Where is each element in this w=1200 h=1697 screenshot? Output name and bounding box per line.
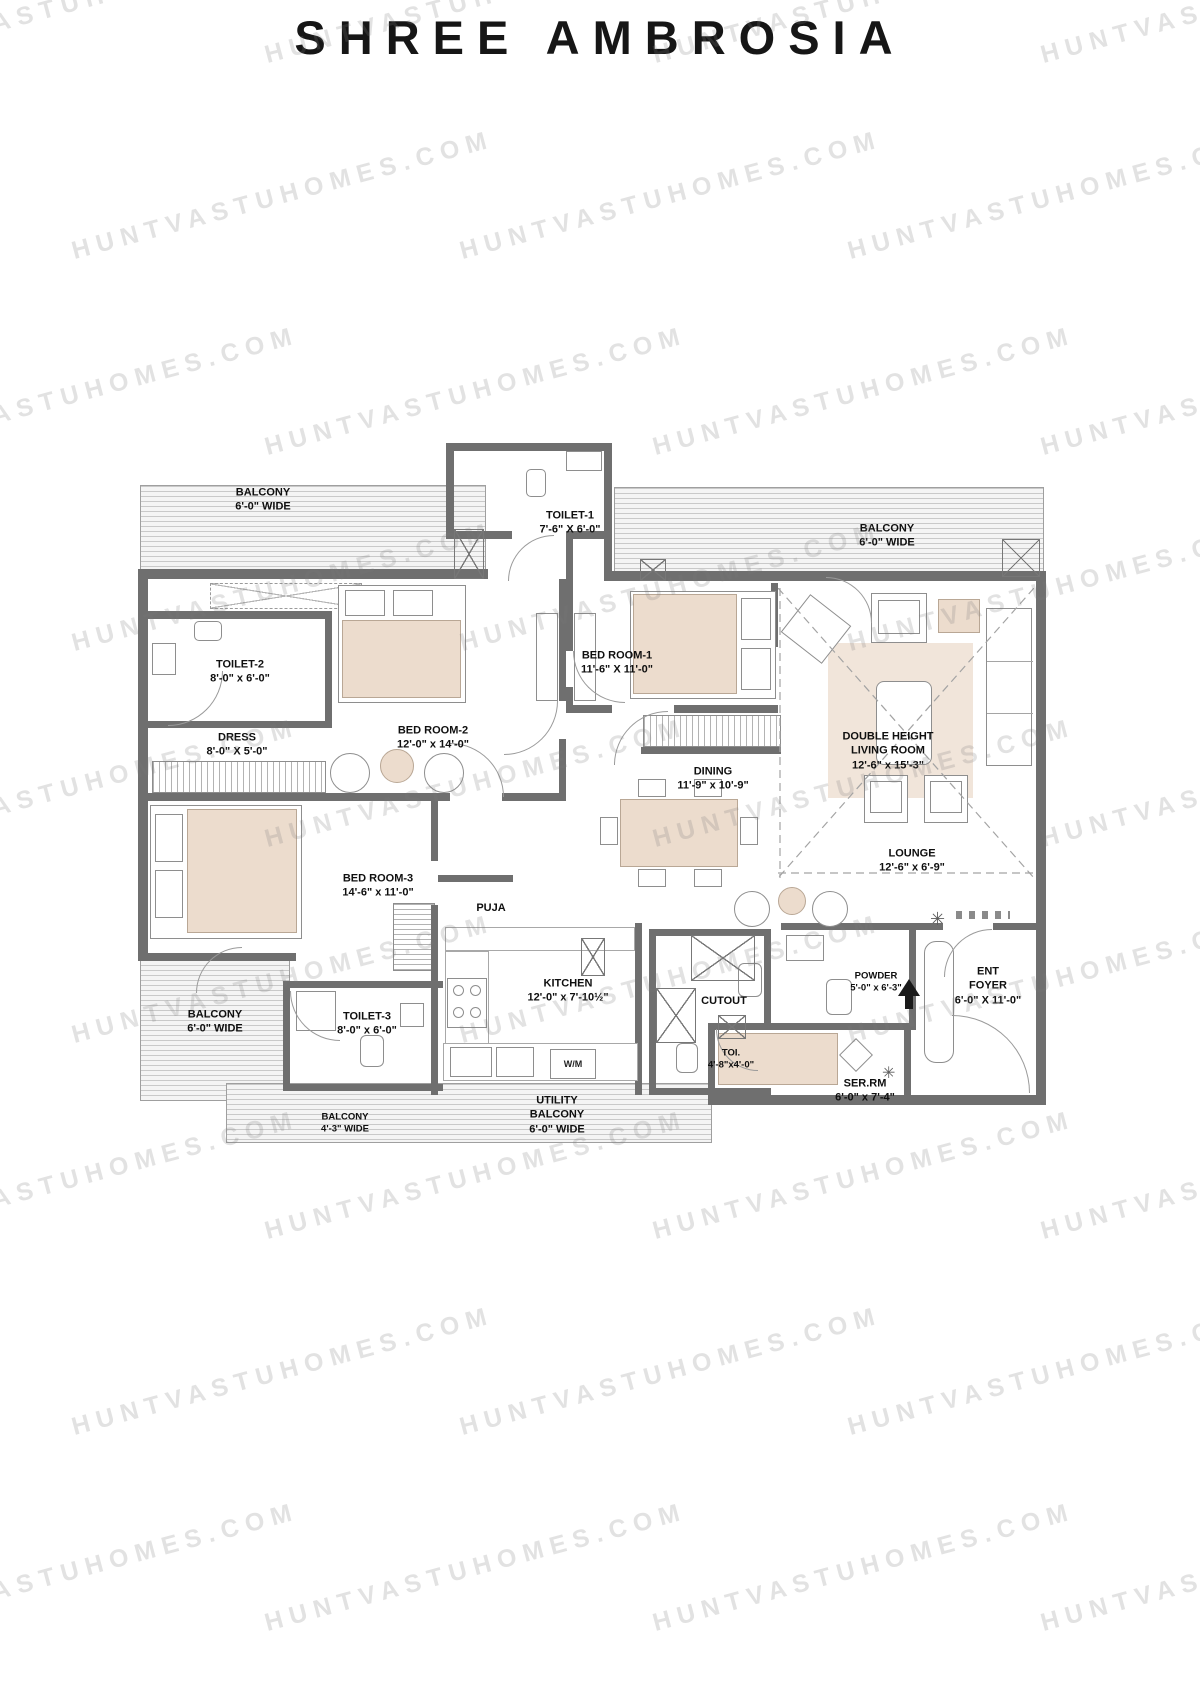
door-arc bbox=[952, 1015, 1030, 1093]
wall-segment bbox=[446, 443, 612, 451]
burner bbox=[470, 1007, 481, 1018]
room-label-dining: DINING 11'-9" x 10'-9" bbox=[677, 765, 748, 794]
bed-icon bbox=[630, 591, 776, 699]
chair-icon bbox=[694, 869, 722, 887]
wall-segment bbox=[502, 793, 566, 801]
room-label-kitchen: KITCHEN 12'-0" x 7'-10½" bbox=[527, 977, 608, 1006]
watermark-text: HUNTVASTUHOMES.COM bbox=[262, 321, 690, 462]
room-label-living-room: DOUBLE HEIGHT LIVING ROOM 12'-6" x 15'-3… bbox=[842, 730, 933, 773]
wall-segment bbox=[446, 443, 454, 539]
chair-icon bbox=[638, 779, 666, 797]
room-label-bed-room-2: BED ROOM-2 12'-0" x 14'-0" bbox=[397, 724, 469, 753]
wall-segment bbox=[1036, 571, 1046, 1105]
toilet-icon bbox=[526, 469, 546, 497]
wall-segment bbox=[138, 569, 148, 961]
room-name: BED ROOM-2 bbox=[397, 724, 469, 738]
column-box bbox=[1002, 539, 1040, 577]
room-label-puja: PUJA bbox=[476, 901, 505, 915]
chair-icon bbox=[812, 891, 848, 927]
wall-segment bbox=[283, 981, 443, 988]
wall-segment bbox=[559, 739, 566, 801]
watermark-text: HUNTVASTUHOMES.COM bbox=[457, 1301, 885, 1442]
room-dims: 4'-8"x4'-0" bbox=[708, 1060, 754, 1072]
room-label-ent-foyer: ENT FOYER 6'-0" X 11'-0" bbox=[955, 965, 1021, 1008]
wall-segment bbox=[993, 923, 1046, 930]
wall-segment bbox=[431, 801, 438, 861]
watermark-text: HUNTVASTUHOMES.COM bbox=[650, 1497, 1078, 1638]
door-arc bbox=[504, 701, 558, 755]
room-name: BALCONY bbox=[859, 522, 915, 536]
pillow-icon bbox=[741, 598, 771, 640]
room-dims: 6'-0" x 7'-4" bbox=[835, 1091, 895, 1105]
room-label-toi: TOI. 4'-8"x4'-0" bbox=[708, 1048, 754, 1073]
room-label-toilet-1: TOILET-1 7'-6" X 6'-0" bbox=[540, 509, 601, 538]
wall-segment bbox=[674, 705, 778, 713]
watermark-text: HUNTVASTUHOMES.COM bbox=[0, 321, 302, 462]
pillow-icon bbox=[393, 590, 433, 616]
watermark-text: HUNTVASTUHOMES.COM bbox=[262, 1497, 690, 1638]
bed-icon bbox=[338, 585, 466, 703]
room-dims: 14'-6" x 11'-0" bbox=[342, 886, 413, 900]
room-dims: 8'-0" x 6'-0" bbox=[337, 1024, 397, 1038]
bed-quilt bbox=[342, 620, 461, 698]
page-title: SHREE AMBROSIA bbox=[0, 10, 1200, 65]
room-name: BED ROOM-3 bbox=[342, 872, 413, 886]
pillow-icon bbox=[155, 814, 183, 862]
room-dims: 11'-6" X 11'-0" bbox=[581, 663, 653, 677]
shaft-box bbox=[656, 988, 696, 1043]
dining-table-icon bbox=[620, 799, 738, 867]
balcony-decking-top-right bbox=[614, 487, 1044, 577]
balcony-decking-top-left bbox=[140, 485, 486, 575]
room-dims: 6'-0" X 11'-0" bbox=[955, 993, 1021, 1007]
sink-icon bbox=[450, 1047, 492, 1077]
room-label-bed-room-3: BED ROOM-3 14'-6" x 11'-0" bbox=[342, 872, 413, 901]
room-name: SER.RM bbox=[835, 1077, 895, 1091]
watermark-text: HUNTVASTUHOMES.COM bbox=[0, 1497, 302, 1638]
room-dims: 6'-0" WIDE bbox=[235, 500, 291, 514]
wall-segment bbox=[781, 923, 943, 930]
wall-segment bbox=[604, 443, 612, 581]
side-table-icon bbox=[778, 887, 806, 915]
wall-segment bbox=[566, 705, 612, 713]
side-table-icon bbox=[380, 749, 414, 783]
room-name: BED ROOM-1 bbox=[581, 649, 653, 663]
watermark-text: HUNTVASTUHOMES.COM bbox=[69, 1301, 497, 1442]
watermark-text: HUNTVASTUHOMES.COM bbox=[845, 1301, 1200, 1442]
watermark-text: HUNTVASTUHOMES.COM bbox=[1038, 1105, 1200, 1246]
chair-icon bbox=[734, 891, 770, 927]
room-label-toilet-2: TOILET-2 8'-0" x 6'-0" bbox=[210, 658, 270, 687]
decor-diamond bbox=[839, 1038, 873, 1072]
room-name: BALCONY bbox=[235, 486, 291, 500]
washbasin-icon bbox=[786, 935, 824, 961]
room-dims: 6'-0" WIDE bbox=[187, 1022, 243, 1036]
wall-segment bbox=[431, 905, 438, 1095]
watermark-text: HUNTVASTUHOMES.COM bbox=[1038, 1497, 1200, 1638]
bed-quilt bbox=[633, 594, 737, 694]
room-label-balcony-bottom: BALCONY 4'-3" WIDE bbox=[321, 1112, 369, 1137]
room-name: KITCHEN bbox=[527, 977, 608, 991]
wall-segment bbox=[566, 539, 573, 651]
toilet-icon bbox=[360, 1035, 384, 1067]
shaft-box bbox=[581, 938, 605, 976]
room-dims: 12'-6" x 15'-3" bbox=[842, 758, 933, 772]
room-name: POWDER bbox=[850, 971, 902, 983]
wall-segment bbox=[904, 1030, 911, 1105]
room-dims: 6'-0" WIDE bbox=[859, 536, 915, 550]
washing-machine-label: W/M bbox=[564, 1059, 583, 1069]
watermark-text: HUNTVASTUHOMES.COM bbox=[69, 125, 497, 266]
chair-icon bbox=[740, 817, 758, 845]
room-dims: 12'-0" x 7'-10½" bbox=[527, 991, 608, 1005]
wall-segment bbox=[909, 923, 916, 1030]
burner bbox=[470, 985, 481, 996]
bed-quilt bbox=[187, 809, 297, 933]
room-label-balcony-left: BALCONY 6'-0" WIDE bbox=[187, 1008, 243, 1037]
wardrobe-dress bbox=[152, 761, 326, 793]
room-label-balcony-top-left: BALCONY 6'-0" WIDE bbox=[235, 486, 291, 515]
toilet-icon bbox=[194, 621, 222, 641]
room-name: BALCONY bbox=[321, 1112, 369, 1124]
wall-segment bbox=[438, 875, 513, 882]
wardrobe-icon bbox=[536, 613, 558, 701]
column-box bbox=[640, 559, 666, 581]
room-name: UTILITY bbox=[529, 1094, 585, 1108]
watermark-text: HUNTVASTUHOMES.COM bbox=[1038, 321, 1200, 462]
room-name: TOILET-3 bbox=[337, 1010, 397, 1024]
door-arc bbox=[290, 991, 340, 1041]
room-name: DINING bbox=[677, 765, 748, 779]
room-label-toilet-3: TOILET-3 8'-0" x 6'-0" bbox=[337, 1010, 397, 1039]
watermark-text: HUNTVASTUHOMES.COM bbox=[1038, 713, 1200, 854]
washing-machine-icon: W/M bbox=[550, 1049, 596, 1079]
room-label-powder: POWDER 5'-0" x 6'-3" bbox=[850, 971, 902, 996]
chair-icon bbox=[330, 753, 370, 793]
room-name: DOUBLE HEIGHT bbox=[842, 730, 933, 744]
watermark-text: HUNTVASTUHOMES.COM bbox=[457, 125, 885, 266]
room-dims: 11'-9" x 10'-9" bbox=[677, 779, 748, 793]
plant-icon: ✳ bbox=[930, 909, 945, 930]
wall-segment bbox=[283, 981, 290, 1091]
washbasin-icon bbox=[400, 1003, 424, 1027]
kitchen-counter bbox=[445, 927, 635, 951]
wall-segment bbox=[138, 569, 488, 579]
room-dims: 4'-3" WIDE bbox=[321, 1124, 369, 1136]
room-name: LOUNGE bbox=[879, 847, 945, 861]
arrow-stem bbox=[905, 996, 913, 1009]
room-dims: 8'-0" x 6'-0" bbox=[210, 672, 270, 686]
room-name: DRESS bbox=[207, 731, 268, 745]
room-name: PUJA bbox=[476, 901, 505, 915]
room-dims: 6'-0" WIDE bbox=[529, 1122, 585, 1136]
room-name: LIVING ROOM bbox=[842, 744, 933, 758]
chair-icon bbox=[638, 869, 666, 887]
shaft-box bbox=[691, 935, 755, 981]
door-arc bbox=[614, 711, 668, 765]
room-label-cutout: CUTOUT bbox=[701, 994, 747, 1008]
room-name: TOILET-1 bbox=[540, 509, 601, 523]
wall-segment bbox=[649, 929, 656, 1095]
room-dims: 5'-0" x 6'-3" bbox=[850, 983, 902, 995]
room-label-bed-room-1: BED ROOM-1 11'-6" X 11'-0" bbox=[581, 649, 653, 678]
pillow-icon bbox=[345, 590, 385, 616]
room-dims: 12'-6" x 6'-9" bbox=[879, 861, 945, 875]
page: SHREE AMBROSIA HUNTVASTUHOMES.COMHUNTVAS… bbox=[0, 0, 1200, 1697]
room-dims: 8'-0" X 5'-0" bbox=[207, 745, 268, 759]
wardrobe-bedroom3 bbox=[393, 903, 435, 971]
room-dims: 12'-0" x 14'-0" bbox=[397, 738, 469, 752]
pillow-icon bbox=[155, 870, 183, 918]
watermark-text: HUNTVASTUHOMES.COM bbox=[650, 321, 1078, 462]
room-label-lounge: LOUNGE 12'-6" x 6'-9" bbox=[879, 847, 945, 876]
room-name: FOYER bbox=[955, 979, 1021, 993]
column-box bbox=[454, 529, 484, 579]
room-label-balcony-top-right: BALCONY 6'-0" WIDE bbox=[859, 522, 915, 551]
bed-icon bbox=[150, 805, 302, 939]
room-name: BALCONY bbox=[529, 1108, 585, 1122]
room-dims: 7'-6" X 6'-0" bbox=[540, 523, 601, 537]
floor-plan: W/M bbox=[138, 443, 1054, 1155]
chair-icon bbox=[600, 817, 618, 845]
wall-segment bbox=[325, 611, 332, 728]
room-label-utility-balcony: UTILITY BALCONY 6'-0" WIDE bbox=[529, 1094, 585, 1137]
room-label-dress: DRESS 8'-0" X 5'-0" bbox=[207, 731, 268, 760]
room-name: CUTOUT bbox=[701, 994, 747, 1008]
burner bbox=[453, 1007, 464, 1018]
wall-segment bbox=[559, 579, 566, 701]
washbasin-icon bbox=[566, 451, 602, 471]
room-label-ser-rm: SER.RM 6'-0" x 7'-4" bbox=[835, 1077, 895, 1106]
room-name: ENT bbox=[955, 965, 1021, 979]
dotted-wall-strip bbox=[956, 911, 1010, 919]
wall-segment bbox=[138, 793, 450, 801]
wall-segment bbox=[764, 929, 771, 1029]
wall-segment bbox=[148, 611, 332, 619]
room-name: TOI. bbox=[708, 1048, 754, 1060]
room-name: TOILET-2 bbox=[210, 658, 270, 672]
stove-icon bbox=[447, 978, 487, 1028]
watermark-text: HUNTVASTUHOMES.COM bbox=[845, 125, 1200, 266]
pillow-icon bbox=[741, 648, 771, 690]
toilet-icon bbox=[676, 1043, 698, 1073]
room-name: BALCONY bbox=[187, 1008, 243, 1022]
door-arc bbox=[508, 535, 554, 581]
sink-icon bbox=[496, 1047, 534, 1077]
wall-segment bbox=[283, 1084, 443, 1091]
toilet-icon bbox=[826, 979, 852, 1015]
burner bbox=[453, 985, 464, 996]
